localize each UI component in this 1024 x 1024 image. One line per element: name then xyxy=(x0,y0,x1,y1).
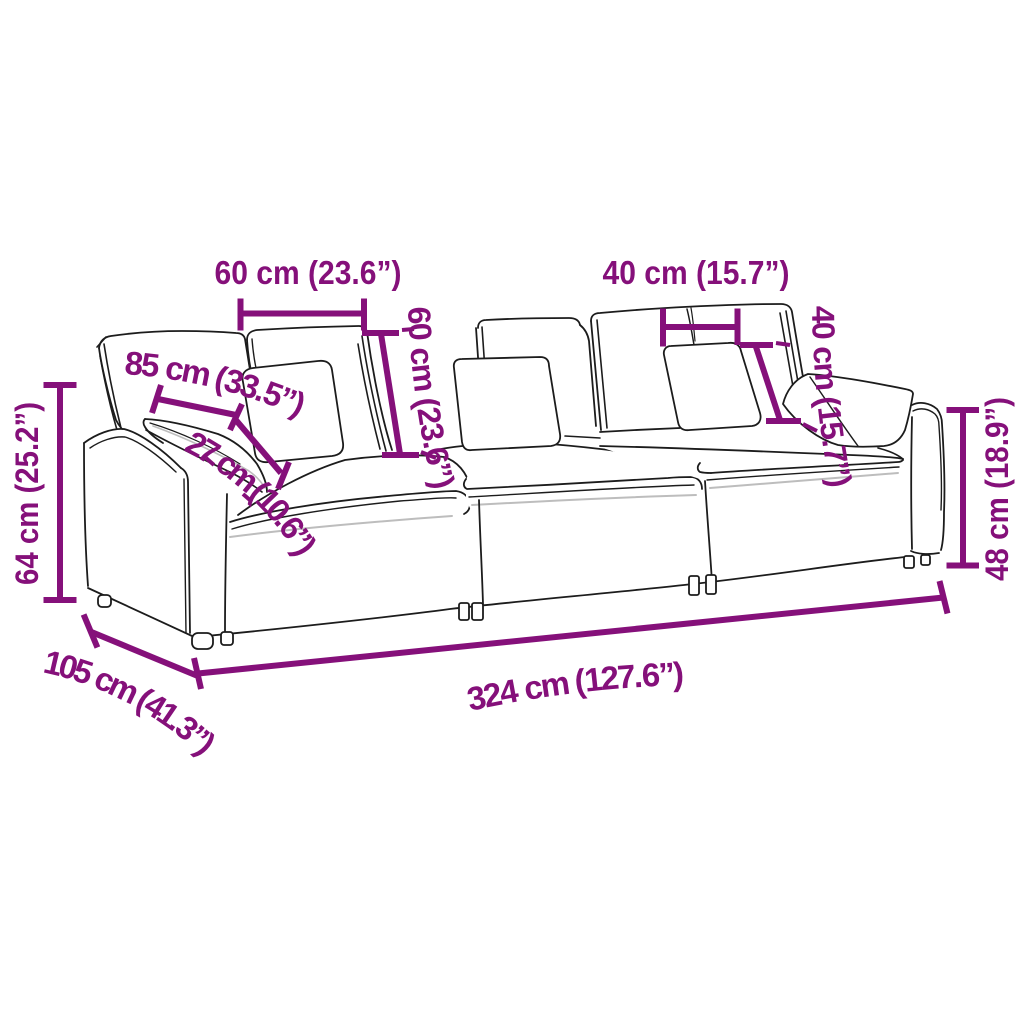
svg-text:64 cm (25.2”): 64 cm (25.2”) xyxy=(9,402,45,585)
svg-text:60 cm (23.6”): 60 cm (23.6”) xyxy=(215,254,402,291)
svg-text:48 cm (18.9”): 48 cm (18.9”) xyxy=(979,397,1015,581)
svg-text:40 cm (15.7”): 40 cm (15.7”) xyxy=(603,254,790,291)
